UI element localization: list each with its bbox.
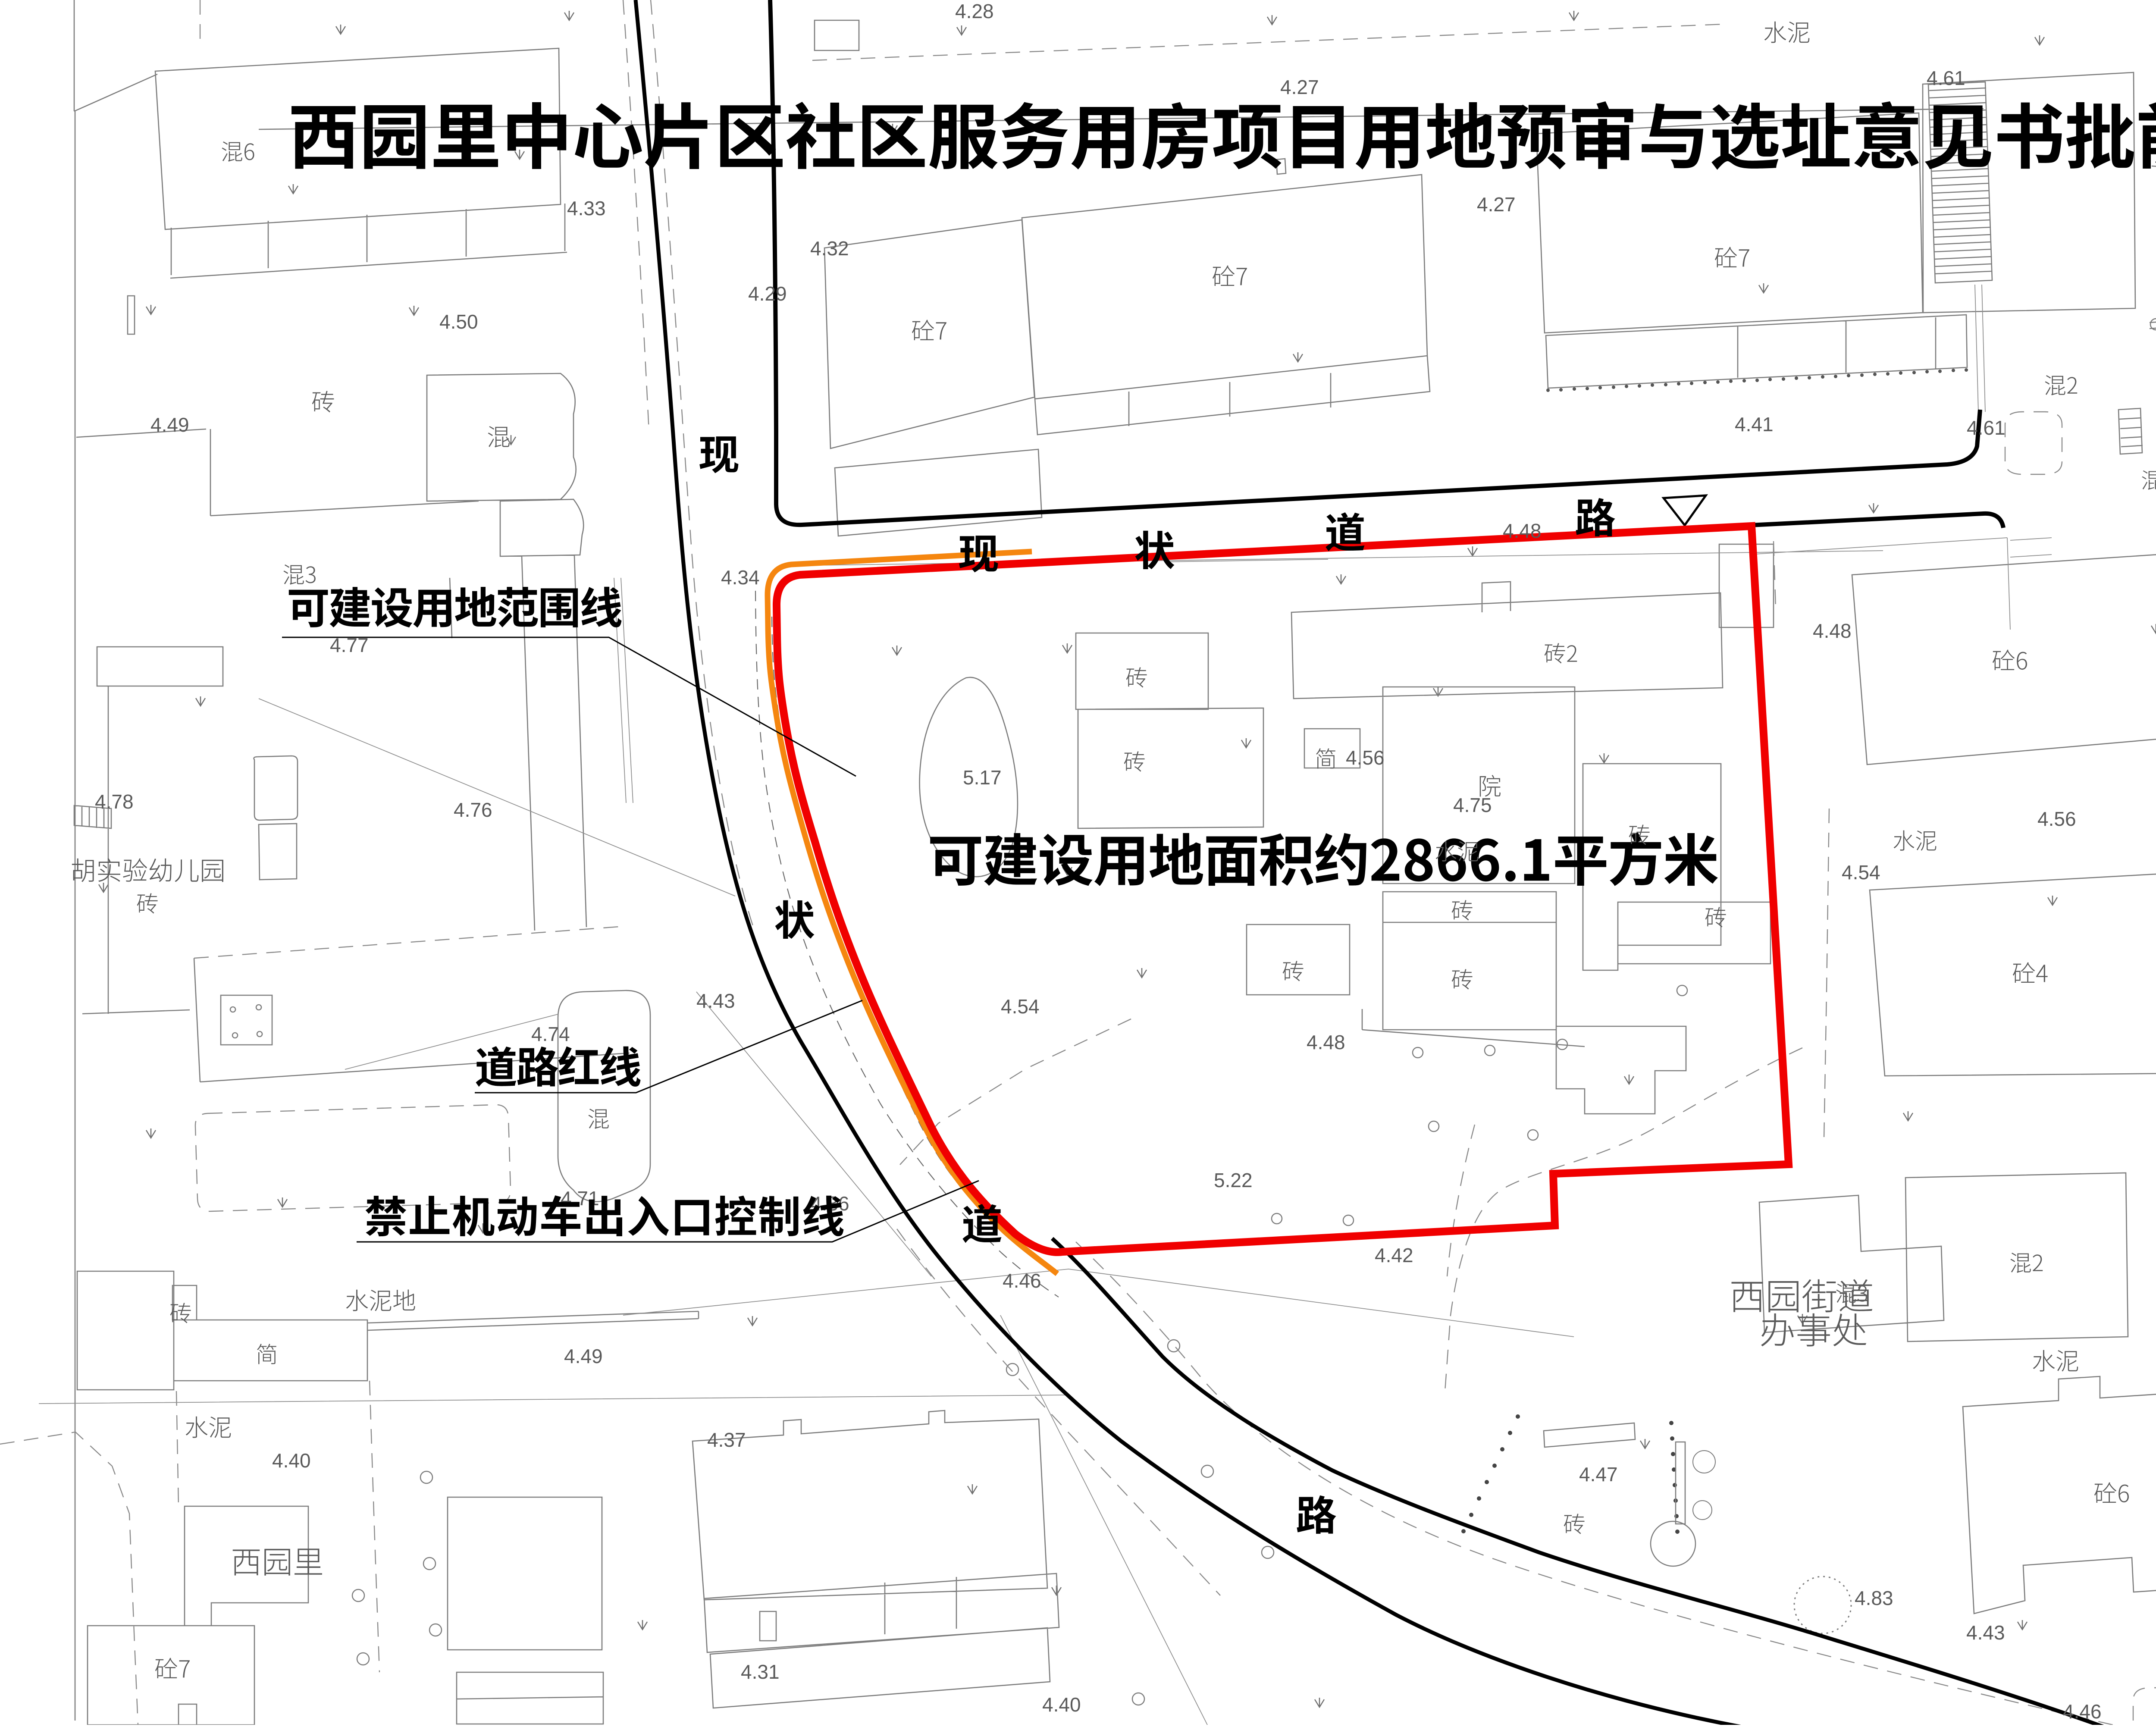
svg-text:4.34: 4.34 <box>721 566 760 589</box>
svg-text:4.48: 4.48 <box>1307 1031 1345 1053</box>
svg-text:4.49: 4.49 <box>564 1345 603 1367</box>
svg-text:4.74: 4.74 <box>531 1023 570 1045</box>
svg-text:4.54: 4.54 <box>1842 861 1880 884</box>
svg-text:4.50: 4.50 <box>439 310 478 333</box>
svg-text:4.31: 4.31 <box>741 1661 780 1683</box>
svg-text:4.29: 4.29 <box>748 282 787 305</box>
svg-text:5.17: 5.17 <box>963 766 1002 789</box>
svg-text:4.33: 4.33 <box>567 197 606 219</box>
svg-text:4.43: 4.43 <box>696 990 735 1012</box>
svg-text:4.43: 4.43 <box>1966 1621 2005 1644</box>
svg-text:4.40: 4.40 <box>1042 1693 1081 1716</box>
svg-text:4.47: 4.47 <box>1579 1463 1618 1486</box>
svg-text:4.46: 4.46 <box>1003 1269 1041 1292</box>
svg-text:5.22: 5.22 <box>1214 1169 1253 1191</box>
svg-text:4.42: 4.42 <box>1375 1244 1413 1266</box>
svg-text:4.27: 4.27 <box>1477 193 1516 216</box>
svg-text:4.48: 4.48 <box>1503 520 1542 542</box>
svg-text:4.46: 4.46 <box>2063 1700 2102 1723</box>
svg-text:4.48: 4.48 <box>1813 620 1852 642</box>
svg-text:4.77: 4.77 <box>330 634 369 656</box>
svg-text:4.49: 4.49 <box>150 414 189 436</box>
svg-text:4.40: 4.40 <box>272 1449 311 1472</box>
svg-text:4.54: 4.54 <box>1001 995 1040 1018</box>
svg-text:4.75: 4.75 <box>1453 794 1492 816</box>
svg-text:4.76: 4.76 <box>454 799 492 821</box>
svg-text:4.28: 4.28 <box>955 0 994 22</box>
svg-text:4.61: 4.61 <box>1967 417 2006 439</box>
svg-text:4.61: 4.61 <box>1927 67 1965 89</box>
svg-text:4.83: 4.83 <box>1855 1587 1893 1609</box>
svg-text:4.37: 4.37 <box>707 1429 746 1451</box>
svg-text:4.78: 4.78 <box>95 790 134 813</box>
svg-text:4.32: 4.32 <box>810 237 849 260</box>
svg-text:4.41: 4.41 <box>1735 413 1774 436</box>
svg-text:4.56: 4.56 <box>1346 746 1385 769</box>
svg-text:4.56: 4.56 <box>2037 808 2076 830</box>
svg-text:4.27: 4.27 <box>1280 76 1319 98</box>
